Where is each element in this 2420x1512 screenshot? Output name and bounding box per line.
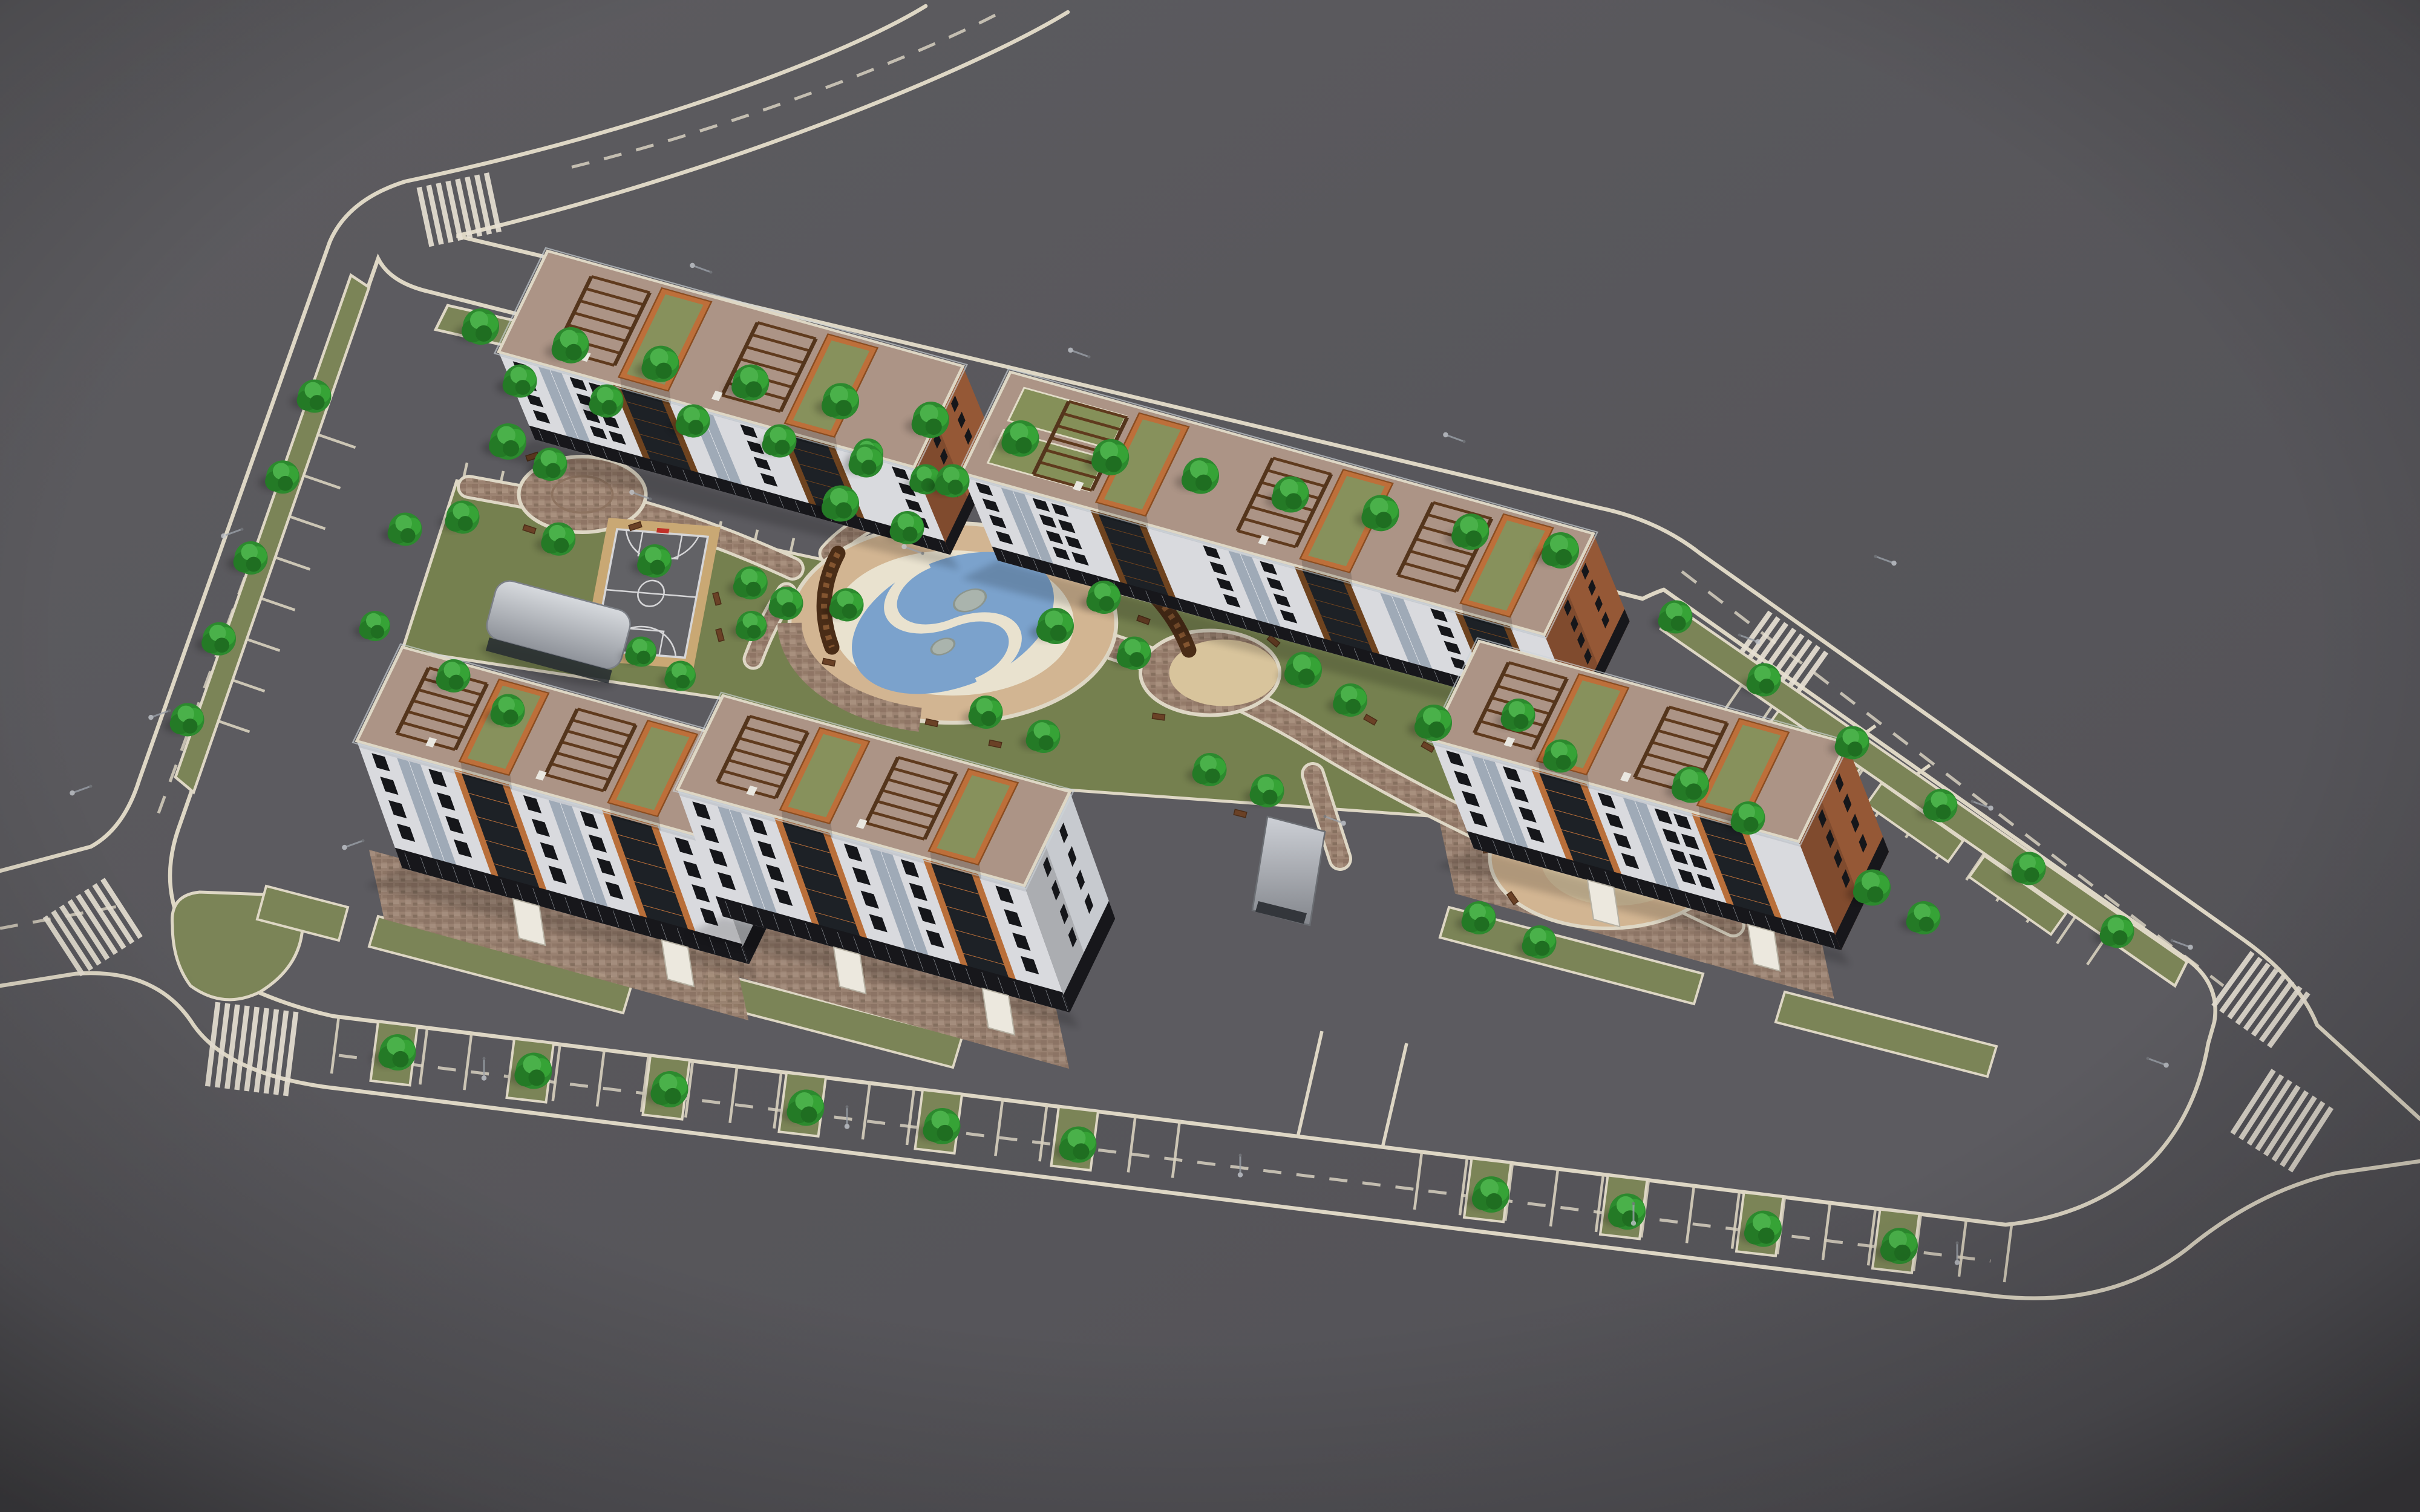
tree-canopy (458, 516, 473, 531)
tree-canopy (842, 604, 857, 619)
tree-canopy (2024, 867, 2039, 882)
tree-canopy (926, 419, 942, 435)
site-plan-render (0, 0, 2420, 1512)
tree-canopy (676, 675, 690, 689)
lamp-head (845, 1124, 850, 1129)
lamp-base (1956, 1242, 1959, 1245)
tree-canopy (393, 1051, 409, 1067)
tree-canopy (1686, 783, 1702, 800)
tree-canopy (746, 582, 761, 597)
tree-canopy (747, 625, 761, 639)
tree-canopy (1428, 722, 1445, 738)
tree-canopy (745, 381, 762, 397)
tree-canopy (1867, 886, 1883, 902)
tree-canopy (1130, 652, 1145, 667)
tree-canopy (1039, 735, 1054, 751)
tree-canopy (1514, 714, 1529, 729)
tree-canopy (1486, 1193, 1502, 1210)
tree-canopy (1671, 616, 1686, 631)
bench (1152, 713, 1165, 720)
tree-canopy (782, 602, 797, 618)
tree-canopy (246, 557, 261, 572)
tree-canopy (214, 637, 229, 653)
tree-canopy (775, 440, 790, 455)
tree-canopy (981, 711, 996, 726)
tree-canopy (650, 560, 665, 575)
tree-canopy (278, 476, 293, 491)
tree-canopy (476, 325, 492, 342)
tree-canopy (1894, 1245, 1911, 1261)
render-viewport (0, 0, 2420, 1512)
tree-canopy (546, 463, 561, 478)
tree-canopy (937, 1125, 953, 1141)
tree-canopy (1622, 1210, 1638, 1227)
tree-canopy (1073, 1143, 1090, 1159)
tree-canopy (1195, 475, 1212, 491)
tree-canopy (1556, 755, 1571, 770)
tree-canopy (449, 675, 464, 690)
tree-canopy (637, 651, 651, 665)
tree-canopy (1474, 917, 1490, 932)
lamp-base (1239, 1154, 1242, 1157)
tree-canopy (1263, 790, 1278, 805)
tree-canopy (1016, 437, 1032, 454)
tree-canopy (566, 344, 582, 360)
tree-canopy (515, 380, 531, 395)
tree-canopy (183, 719, 198, 734)
tree-canopy (1919, 917, 1934, 932)
lamp-head (1631, 1220, 1637, 1226)
tree-canopy (554, 538, 569, 553)
tree-canopy (948, 480, 963, 495)
tree-canopy (1205, 769, 1220, 784)
tree-canopy (1376, 512, 1392, 528)
tree-canopy (1105, 456, 1122, 472)
tree-canopy (1465, 530, 1482, 547)
tree-canopy (401, 528, 416, 543)
tree-canopy (1555, 549, 1572, 565)
tree-canopy (1286, 493, 1302, 509)
lamp-head (1238, 1172, 1243, 1178)
tree-canopy (1346, 699, 1361, 714)
tree-canopy (310, 395, 325, 410)
tree-canopy (836, 400, 852, 416)
tree-canopy (1744, 817, 1759, 832)
tree-canopy (503, 709, 518, 725)
lamp-head (1955, 1260, 1960, 1265)
tree-canopy (801, 1106, 817, 1123)
lamp-base (846, 1106, 849, 1109)
lamp-base (483, 1057, 486, 1060)
tree-canopy (665, 1088, 681, 1104)
tree-canopy (1758, 1228, 1774, 1244)
tree-canopy (862, 460, 877, 475)
tree-canopy (371, 625, 385, 639)
tree-canopy (1848, 741, 1863, 757)
bench-seat (1152, 713, 1165, 720)
tree-canopy (1535, 941, 1550, 956)
tree-canopy (1936, 804, 1951, 820)
lamp-base (1632, 1202, 1635, 1205)
tree-canopy (656, 363, 672, 379)
tree-canopy (688, 420, 704, 435)
tree-canopy (2113, 930, 2128, 945)
tree-canopy (1099, 596, 1114, 611)
tree-canopy (1298, 668, 1315, 685)
tree-canopy (1759, 679, 1774, 694)
tree-canopy (1050, 625, 1067, 641)
tree-canopy (529, 1069, 545, 1086)
tree-canopy (503, 440, 519, 457)
tree-canopy (602, 400, 617, 415)
tree-canopy (903, 527, 918, 542)
tree-canopy (836, 502, 852, 518)
lamp-head (482, 1075, 487, 1081)
